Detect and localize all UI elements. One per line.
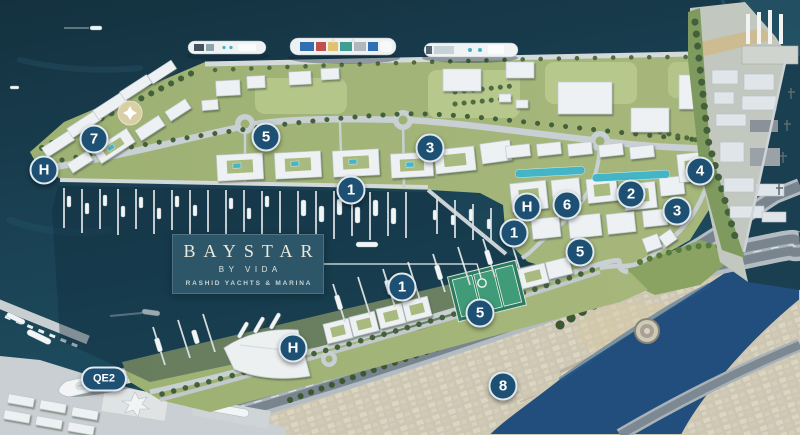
helipad-plaza [118,101,142,125]
marker-2[interactable]: 2 [617,180,646,209]
marker-1[interactable]: 1 [388,273,417,302]
marker-h[interactable]: H [513,193,542,222]
cruise-ship-1 [186,41,270,61]
marker-5[interactable]: 5 [466,299,495,328]
marker-5[interactable]: 5 [566,238,595,267]
brand-name: BAYSTAR [176,242,321,260]
brand-card: BAYSTAR BY VIDA RASHID YACHTS & MARINA [172,234,324,294]
marker-h[interactable]: H [30,156,59,185]
marker-4[interactable]: 4 [686,157,715,186]
marker-8[interactable]: 8 [489,372,518,401]
marker-1[interactable]: 1 [500,219,529,248]
marker-3[interactable]: 3 [663,197,692,226]
masterplan-screenshot: BAYSTAR BY VIDA RASHID YACHTS & MARINA 7… [0,0,800,435]
brand-byline: BY VIDA [214,265,281,274]
cruise-ship-3 [422,43,518,63]
city-roundabout [635,319,659,343]
brand-tagline: RASHID YACHTS & MARINA [184,280,312,287]
cruise-ship-2 [288,38,400,64]
marker-3[interactable]: 3 [416,134,445,163]
marker-1[interactable]: 1 [337,176,366,205]
marker-6[interactable]: 6 [553,191,582,220]
marker-7[interactable]: 7 [80,125,109,154]
marker-qe2[interactable]: QE2 [81,367,127,392]
marker-h[interactable]: H [279,334,308,363]
marker-5[interactable]: 5 [252,123,281,152]
